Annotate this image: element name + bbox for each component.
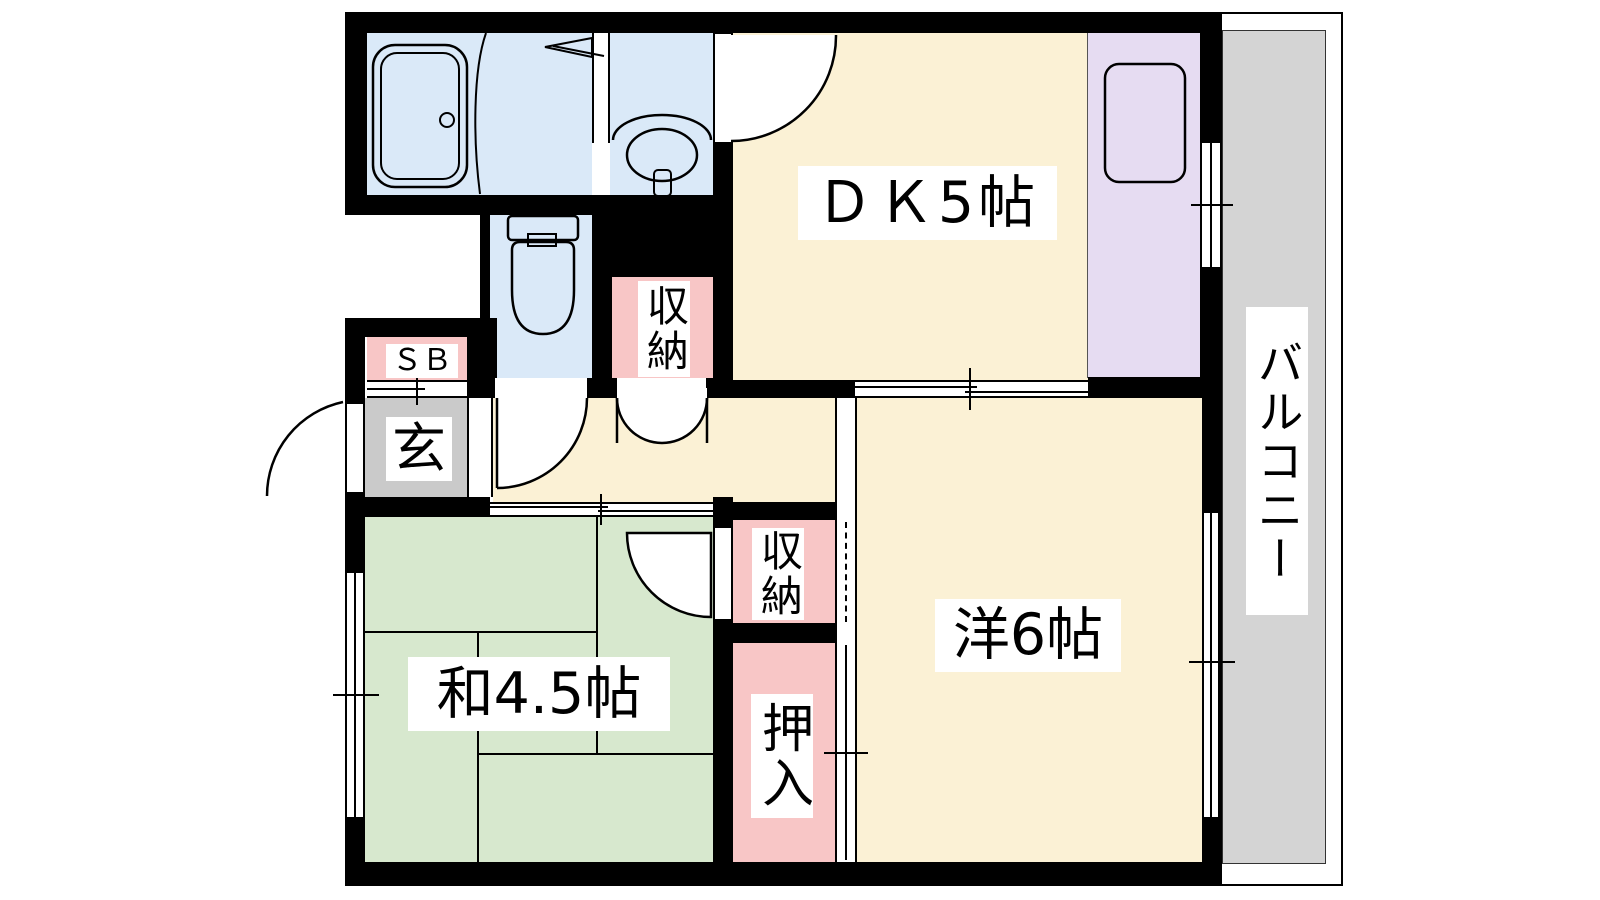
dk-door-swing: [731, 35, 836, 141]
oshiire-label: 押入: [751, 694, 813, 818]
storage-double-doors: [617, 388, 707, 443]
japanese-room-label: 和4.5帖: [408, 657, 670, 731]
tatami-door-swing: [627, 533, 711, 617]
balcony-label: バルコニー: [1246, 307, 1308, 615]
floorplan-canvas: ＤＫ5帖 洋6帖 和4.5帖 玄 ＳＢ 収納 収納 押入 バルコニー: [0, 0, 1600, 900]
dk-room-label: ＤＫ5帖: [798, 166, 1057, 240]
toilet-icon: [508, 216, 578, 334]
kitchen-sink-icon: [1105, 64, 1185, 182]
washbasin-icon: [613, 115, 711, 196]
western-room-label: 洋6帖: [935, 599, 1121, 672]
bathtub-icon: [373, 33, 486, 194]
shoebox-label: ＳＢ: [386, 344, 458, 378]
storage-west-label: 収納: [752, 528, 804, 620]
toilet-door-swing: [497, 388, 587, 488]
entrance-door-swing: [267, 402, 343, 496]
storage-hall-label: 収納: [638, 281, 690, 377]
washroom-door-mark: [545, 38, 604, 57]
entrance-label: 玄: [386, 417, 452, 481]
